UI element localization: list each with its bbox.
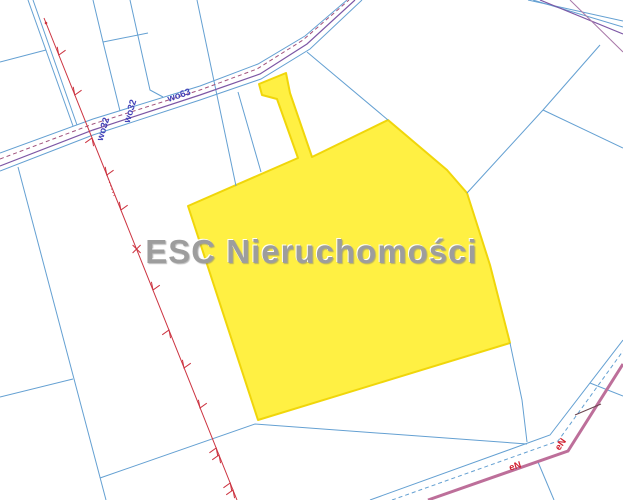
highlighted-parcel[interactable] bbox=[188, 73, 510, 420]
map-viewport: wo63 wo32 wo32 eN eN ESC Nieruchomości bbox=[0, 0, 623, 500]
utility-label-en-a: eN bbox=[508, 460, 523, 474]
power-line-cross-mark bbox=[133, 245, 141, 253]
road-top-right bbox=[528, 0, 623, 52]
power-line-node bbox=[45, 22, 48, 25]
cadastral-map-canvas[interactable]: wo63 wo32 wo32 eN eN bbox=[0, 0, 623, 500]
